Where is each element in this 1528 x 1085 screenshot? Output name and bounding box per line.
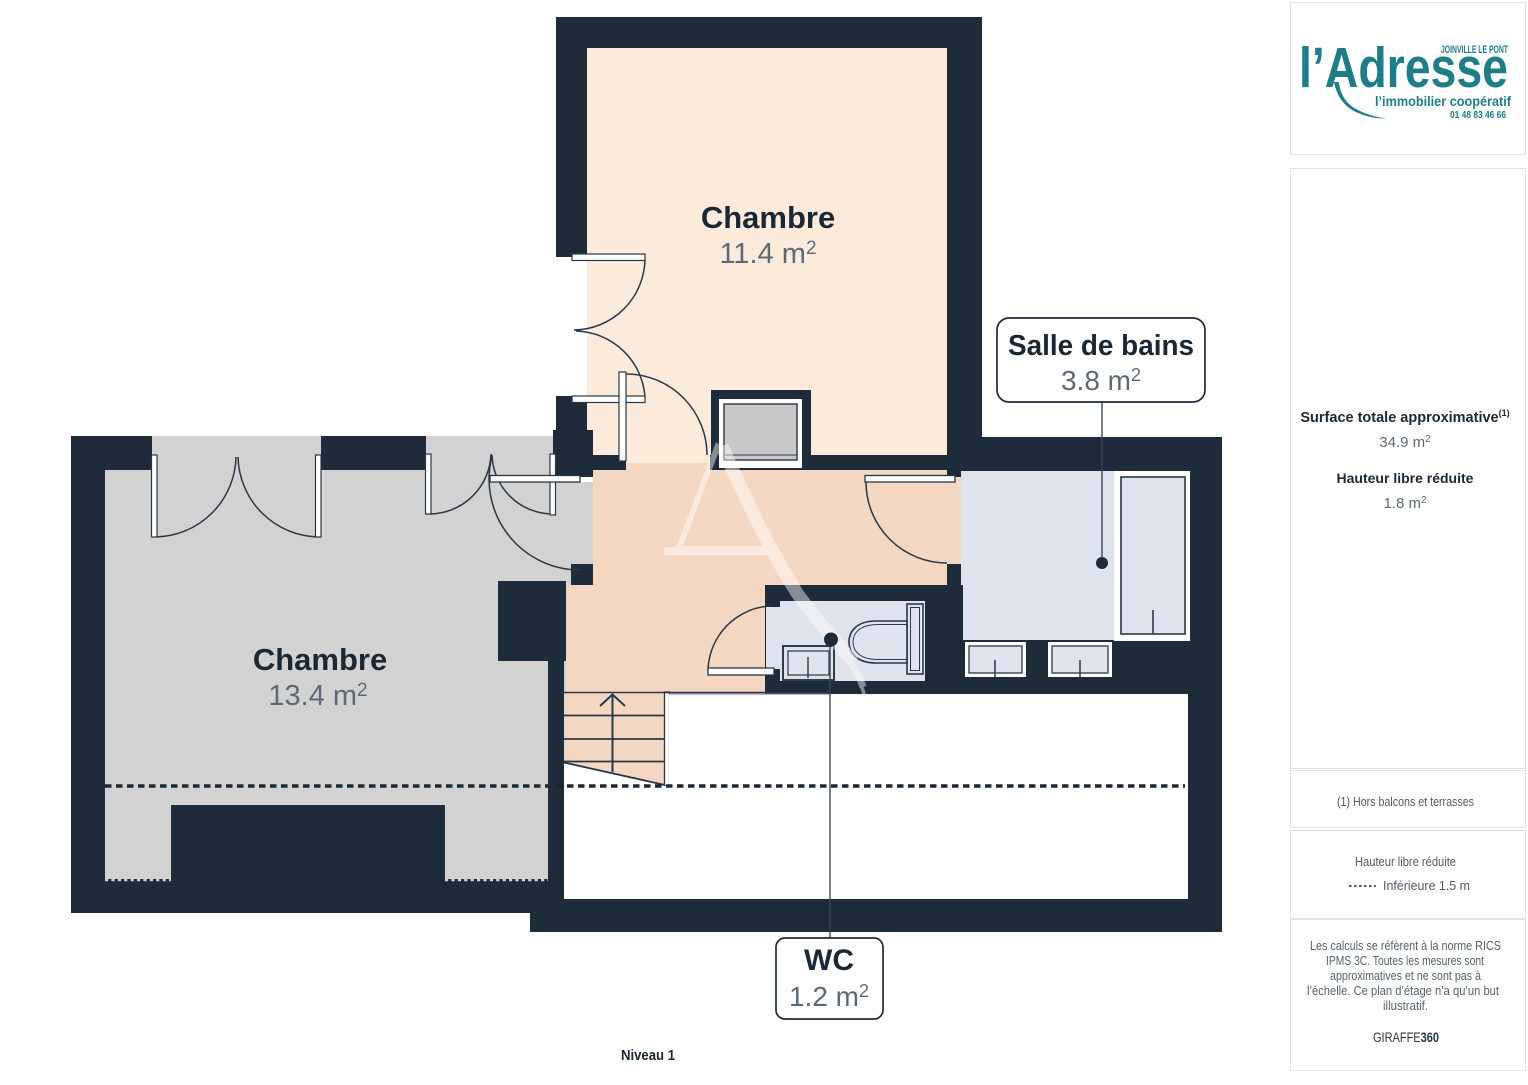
svg-text:illustratif.: illustratif. — [1383, 999, 1428, 1013]
svg-text:Surface totale approximative(1: Surface totale approximative(1) — [1300, 408, 1509, 426]
svg-text:13.4 m2: 13.4 m2 — [268, 680, 367, 712]
svg-text:Inférieure 1.5 m: Inférieure 1.5 m — [1383, 879, 1470, 893]
svg-text:1.8 m2: 1.8 m2 — [1383, 495, 1427, 512]
svg-text:approximatives et ne sont pas: approximatives et ne sont pas à — [1330, 969, 1481, 983]
svg-text:11.4 m2: 11.4 m2 — [719, 238, 816, 270]
svg-text:WC: WC — [804, 944, 854, 977]
svg-text:l’immobilier coopératif: l’immobilier coopératif — [1375, 94, 1511, 109]
svg-text:GIRAFFE360: GIRAFFE360 — [1373, 1030, 1439, 1045]
svg-text:Salle de bains: Salle de bains — [1008, 330, 1194, 362]
svg-text:Hauteur libre réduite: Hauteur libre réduite — [1337, 470, 1474, 486]
svg-text:3.8 m2: 3.8 m2 — [1061, 365, 1141, 396]
svg-text:34.9 m2: 34.9 m2 — [1379, 434, 1431, 451]
svg-text:Niveau 1: Niveau 1 — [621, 1047, 675, 1064]
svg-text:Les calculs se réfèrent à la n: Les calculs se réfèrent à la norme RICS — [1310, 939, 1501, 953]
svg-text:Chambre: Chambre — [253, 642, 387, 677]
svg-text:Chambre: Chambre — [701, 200, 835, 235]
svg-text:(1) Hors balcons et terrasses: (1) Hors balcons et terrasses — [1337, 795, 1474, 809]
svg-text:l’échelle. Ce plan d’étage n’a: l’échelle. Ce plan d’étage n’a qu’un but — [1307, 984, 1499, 998]
svg-text:JOINVILLE LE PONT: JOINVILLE LE PONT — [1441, 44, 1508, 56]
svg-text:IPMS 3C. Toutes les mesures so: IPMS 3C. Toutes les mesures sont — [1326, 954, 1484, 968]
svg-text:01 48 83 46 66: 01 48 83 46 66 — [1450, 109, 1506, 121]
svg-text:Hauteur libre réduite: Hauteur libre réduite — [1355, 855, 1456, 869]
svg-text:1.2 m2: 1.2 m2 — [789, 981, 869, 1012]
